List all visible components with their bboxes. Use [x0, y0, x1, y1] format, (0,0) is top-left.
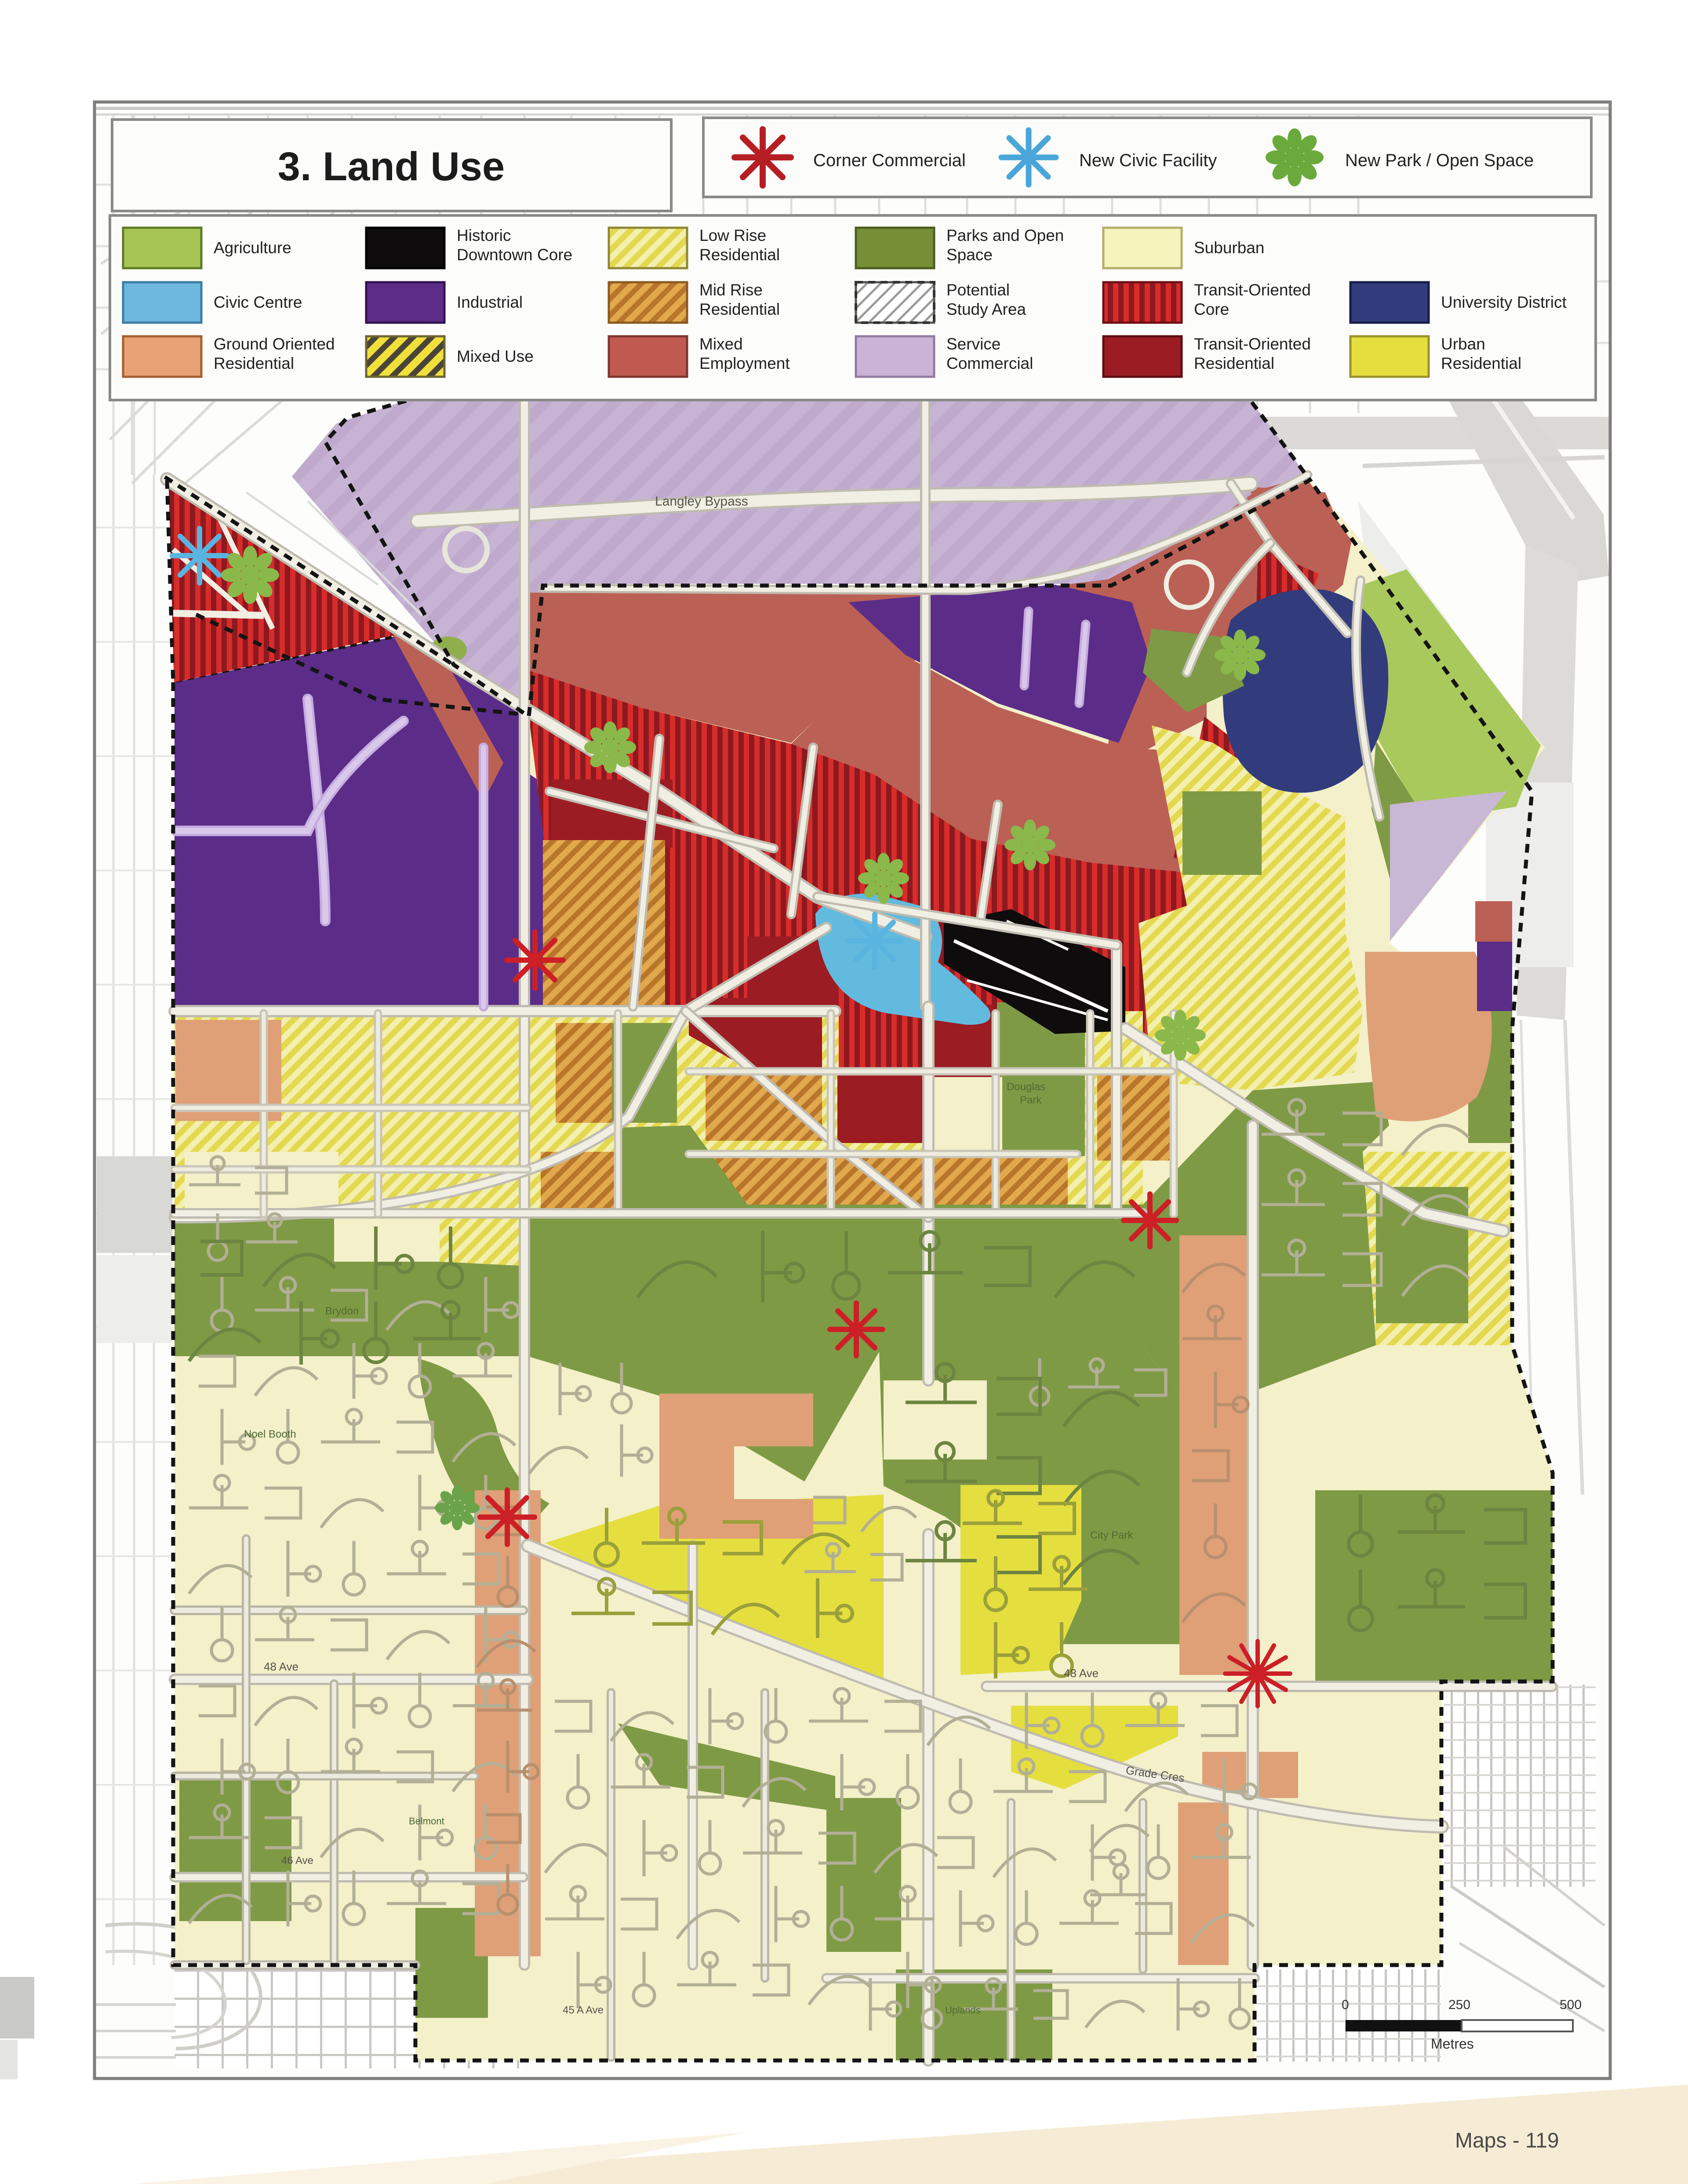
- svg-text:Transit-Oriented: Transit-Oriented: [1194, 281, 1311, 299]
- svg-text:500: 500: [1560, 1998, 1582, 2012]
- svg-text:Residential: Residential: [699, 300, 780, 318]
- svg-text:Residential: Residential: [1194, 354, 1274, 372]
- svg-text:Residential: Residential: [214, 354, 294, 372]
- svg-text:Mid Rise: Mid Rise: [699, 281, 763, 299]
- svg-text:48 Ave: 48 Ave: [264, 1660, 298, 1673]
- svg-text:45 A Ave: 45 A Ave: [563, 2004, 604, 2016]
- svg-text:Suburban: Suburban: [1194, 239, 1264, 257]
- svg-text:City Park: City Park: [1090, 1529, 1133, 1541]
- svg-text:Civic Centre: Civic Centre: [214, 293, 302, 311]
- svg-text:Industrial: Industrial: [457, 293, 523, 311]
- svg-text:Agriculture: Agriculture: [214, 239, 291, 257]
- svg-text:Brydon: Brydon: [325, 1305, 359, 1317]
- svg-text:3. Land Use: 3. Land Use: [278, 144, 505, 189]
- svg-text:0: 0: [1342, 1998, 1349, 2012]
- svg-text:Commercial: Commercial: [946, 354, 1033, 372]
- svg-text:Low Rise: Low Rise: [699, 226, 766, 244]
- svg-text:Ground Oriented: Ground Oriented: [214, 335, 335, 353]
- svg-text:46 Ave: 46 Ave: [281, 1855, 313, 1867]
- svg-text:Downtown Core: Downtown Core: [457, 246, 572, 264]
- svg-text:Residential: Residential: [1441, 354, 1521, 372]
- svg-text:48 Ave: 48 Ave: [1064, 1667, 1099, 1680]
- svg-text:Douglas: Douglas: [1007, 1081, 1045, 1093]
- svg-text:250: 250: [1448, 1998, 1470, 2012]
- svg-text:Belmont: Belmont: [409, 1816, 444, 1827]
- svg-text:Mixed: Mixed: [699, 335, 743, 353]
- svg-text:Core: Core: [1194, 300, 1229, 318]
- svg-text:Langley Bypass: Langley Bypass: [655, 494, 748, 509]
- svg-text:Urban: Urban: [1441, 335, 1485, 353]
- svg-text:Corner Commercial: Corner Commercial: [813, 151, 966, 170]
- svg-text:Parks and Open: Parks and Open: [946, 226, 1064, 244]
- svg-text:Residential: Residential: [699, 246, 780, 264]
- svg-text:Space: Space: [946, 246, 993, 264]
- svg-text:Employment: Employment: [699, 354, 790, 372]
- svg-text:University District: University District: [1441, 293, 1567, 311]
- svg-text:Historic: Historic: [457, 226, 511, 244]
- svg-text:Park: Park: [1020, 1094, 1042, 1106]
- svg-text:Transit-Oriented: Transit-Oriented: [1194, 335, 1311, 353]
- svg-text:Study Area: Study Area: [946, 300, 1026, 318]
- svg-text:Service: Service: [946, 335, 1000, 353]
- svg-text:New Park / Open Space: New Park / Open Space: [1345, 151, 1534, 170]
- svg-text:New Civic Facility: New Civic Facility: [1079, 151, 1217, 170]
- svg-text:Potential: Potential: [946, 281, 1010, 299]
- svg-text:Metres: Metres: [1431, 2036, 1474, 2052]
- svg-text:Uplands: Uplands: [945, 2005, 981, 2016]
- svg-text:Maps - 119: Maps - 119: [1455, 2129, 1559, 2152]
- svg-text:Mixed Use: Mixed Use: [457, 347, 534, 365]
- svg-text:Noel Booth: Noel Booth: [244, 1428, 296, 1440]
